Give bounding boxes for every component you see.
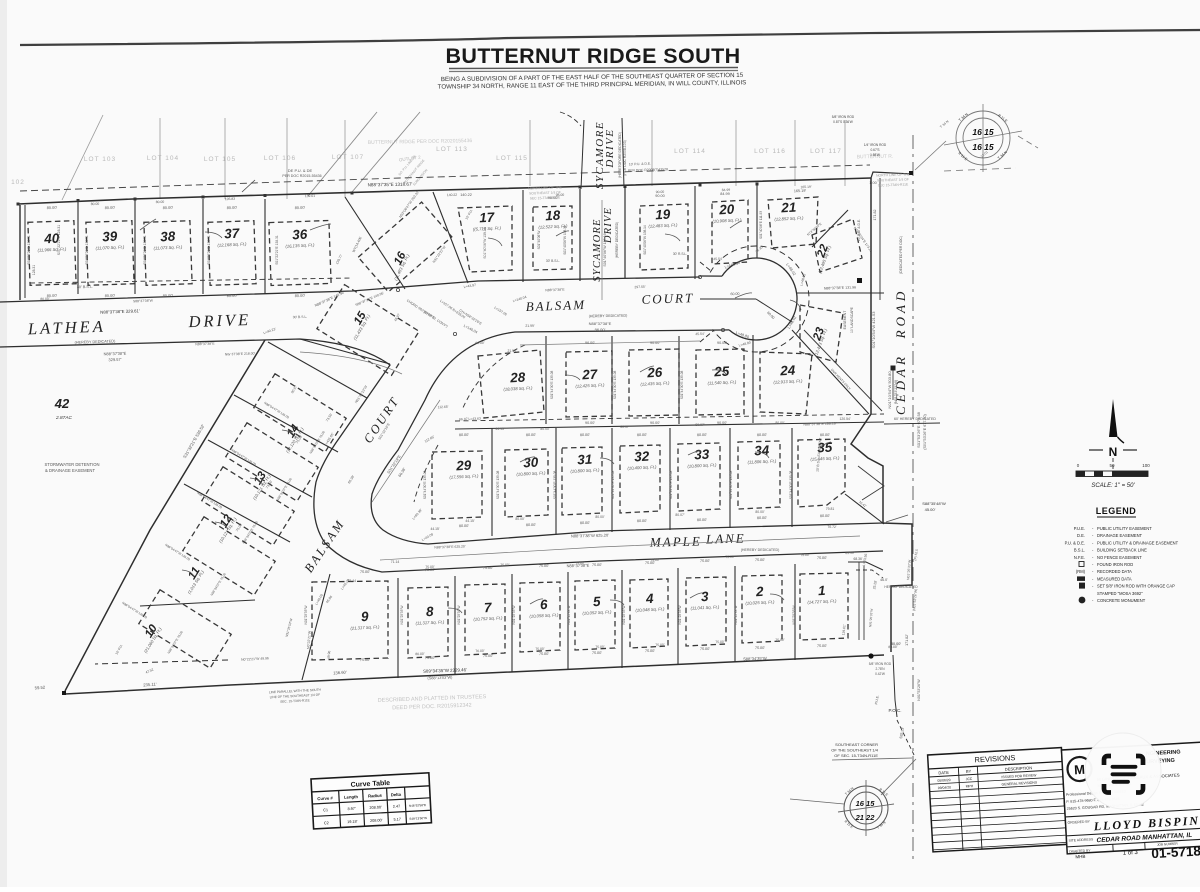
svg-text:7: 7 (484, 600, 493, 615)
svg-text:LOT 117: LOT 117 (810, 148, 842, 155)
svg-text:N01°25'33"W: N01°25'33"W (567, 606, 571, 625)
svg-text:44.15': 44.15' (495, 427, 504, 431)
svg-text:SET 5/8" IRON ROD WITH ORANGE: SET 5/8" IRON ROD WITH ORANGE CAP (1097, 584, 1175, 589)
svg-text:90.00': 90.00' (650, 421, 660, 425)
svg-text:LOT 104: LOT 104 (147, 155, 179, 162)
svg-text:76.00': 76.00' (475, 649, 485, 653)
svg-text:128.31: 128.31 (32, 265, 36, 275)
svg-text:8: 8 (426, 604, 435, 619)
svg-text:S01°44'30"E 135.08: S01°44'30"E 135.08 (729, 471, 733, 500)
svg-text:N88°37'38"E: N88°37'38"E (545, 288, 565, 293)
svg-text:59.52: 59.52 (34, 685, 45, 691)
svg-text:LOT 107: LOT 107 (332, 154, 364, 161)
svg-text:LOT 105: LOT 105 (204, 156, 236, 163)
svg-text:80.00': 80.00' (540, 427, 549, 431)
svg-text:9: 9 (361, 609, 370, 624)
svg-text:Curve #: Curve # (317, 795, 333, 801)
svg-text:45.00': 45.00' (925, 507, 936, 512)
svg-text:LOT 115: LOT 115 (496, 155, 528, 162)
svg-text:BY: BY (966, 769, 972, 774)
svg-text:NO FENCE EASEMENT: NO FENCE EASEMENT (1097, 555, 1142, 560)
svg-text:10' LANDSCAPE: 10' LANDSCAPE (850, 306, 854, 333)
svg-text:30' R.S.L.: 30' R.S.L. (673, 252, 687, 256)
svg-text:75.00': 75.00' (655, 643, 665, 647)
svg-text:80.00': 80.00' (515, 517, 524, 521)
svg-text:N01°10'54"W 503.80: N01°10'54"W 503.80 (887, 371, 892, 409)
svg-text:5/8" IRON ROD: 5/8" IRON ROD (832, 115, 855, 119)
svg-text:SOUTHEAST CORNER: SOUTHEAST CORNER (835, 742, 878, 747)
svg-text:80.00': 80.00' (295, 205, 306, 210)
svg-text:208.00': 208.00' (369, 805, 382, 810)
svg-text:75.00': 75.00' (592, 563, 602, 567)
svg-text:80.00': 80.00' (459, 524, 469, 528)
svg-text:80.00': 80.00' (295, 293, 306, 298)
svg-text:90.00': 90.00' (717, 341, 727, 345)
svg-text:80.00': 80.00' (757, 516, 767, 520)
svg-text:MPH: MPH (966, 784, 974, 788)
svg-text:P.U.E.: P.U.E. (1074, 526, 1085, 531)
svg-text:2.78'N: 2.78'N (875, 667, 885, 671)
svg-text:30' B.S.L.: 30' B.S.L. (546, 259, 560, 263)
svg-text:60' HEREBY DEDICATED: 60' HEREBY DEDICATED (894, 417, 936, 421)
svg-text:LOT 106: LOT 106 (264, 155, 296, 162)
svg-text:N01°25'33"W: N01°25'33"W (512, 606, 516, 625)
svg-text:S01°22'21"E 138.31: S01°22'21"E 138.31 (275, 235, 279, 265)
svg-text:80.00': 80.00' (697, 518, 707, 522)
svg-text:32: 32 (634, 449, 650, 465)
svg-text:30' B.S.L.: 30' B.S.L. (293, 315, 308, 320)
svg-text:S01°40'06"W 138.14: S01°40'06"W 138.14 (643, 225, 647, 255)
svg-text:(RM): (RM) (1076, 569, 1086, 574)
svg-text:S88°34'35"W: S88°34'35"W (743, 656, 767, 662)
svg-text:0.67'S: 0.67'S (871, 148, 880, 152)
svg-text:C2: C2 (324, 821, 329, 825)
svg-text:DRIVE: DRIVE (187, 310, 251, 331)
svg-text:75.00': 75.00' (539, 652, 549, 656)
svg-text:N01°25'33"W: N01°25'33"W (457, 606, 461, 625)
svg-text:44.15': 44.15' (465, 519, 474, 523)
svg-text:B.S.L.: B.S.L. (1074, 548, 1085, 553)
svg-text:OF SEC. 15-T34N-R11E: OF SEC. 15-T34N-R11E (834, 753, 878, 758)
svg-text:75.00': 75.00' (755, 646, 765, 650)
svg-text:16 15: 16 15 (972, 142, 994, 152)
svg-text:60.00: 60.00 (730, 292, 739, 296)
svg-text:N01°25'33"W: N01°25'33"W (678, 606, 682, 625)
svg-text:3: 3 (701, 589, 710, 604)
svg-text:S01°44'30"E 135.08: S01°44'30"E 135.08 (553, 471, 557, 500)
svg-text:N01°25'33"W: N01°25'33"W (622, 606, 626, 625)
svg-text:80.00': 80.00' (227, 205, 238, 210)
svg-text:PUBLIC UTILITY EASEMENT: PUBLIC UTILITY EASEMENT (1097, 526, 1152, 531)
svg-text:2.47: 2.47 (393, 804, 401, 808)
svg-text:S01°40'06"W 139.16: S01°40'06"W 139.16 (483, 227, 487, 258)
svg-text:MHB: MHB (1075, 854, 1085, 860)
svg-text:80.00': 80.00' (757, 433, 767, 437)
svg-text:S01°22'21"E 138.31: S01°22'21"E 138.31 (85, 235, 89, 265)
svg-text:80.00': 80.00' (526, 523, 536, 527)
svg-text:S01°44'30"E 135.08: S01°44'30"E 135.08 (611, 471, 615, 500)
svg-text:80.00': 80.00' (415, 652, 425, 656)
svg-text:80.00': 80.00' (227, 293, 238, 298)
svg-text:MEASURED DATA: MEASURED DATA (1097, 576, 1132, 581)
svg-text:Delta: Delta (391, 792, 402, 798)
svg-text:(PER DOC R2008-103): (PER DOC R2008-103) (623, 140, 627, 175)
svg-text:LEGEND: LEGEND (1096, 506, 1137, 516)
svg-text:21: 21 (780, 200, 797, 216)
svg-text:S01°22'21"E 138.31: S01°22'21"E 138.31 (143, 235, 147, 265)
svg-text:(DEDICATED PER DOC): (DEDICATED PER DOC) (899, 236, 903, 274)
svg-text:FOUND IRON ROD: FOUND IRON ROD (1097, 562, 1133, 567)
svg-text:8.97': 8.97' (347, 807, 356, 811)
svg-text:83.36': 83.36' (845, 551, 855, 555)
svg-text:80.07': 80.07' (695, 423, 704, 427)
svg-text:105.83: 105.83 (225, 197, 236, 201)
svg-text:75.00': 75.00' (595, 645, 605, 649)
svg-text:OF THE SOUTHEAST 1/4: OF THE SOUTHEAST 1/4 (831, 748, 879, 753)
svg-text:S01°44'30"E 135.08: S01°44'30"E 135.08 (789, 471, 793, 500)
svg-text:S01°22'21"E 138.31: S01°22'21"E 138.31 (207, 235, 211, 265)
svg-text:P.U. & D.E.: P.U. & D.E. (1065, 540, 1085, 545)
svg-text:80.00': 80.00' (775, 421, 784, 425)
svg-text:120.54': 120.54' (839, 417, 850, 421)
svg-text:21.99': 21.99' (525, 324, 534, 328)
svg-text:LOT 113: LOT 113 (436, 146, 468, 153)
svg-text:2.87AC: 2.87AC (55, 415, 73, 421)
svg-text:STAMPED "MOSA 3692": STAMPED "MOSA 3692" (1097, 591, 1143, 596)
svg-text:21 22: 21 22 (855, 813, 876, 822)
svg-text:S88°35'48"W: S88°35'48"W (922, 501, 946, 506)
svg-text:S01°44'30"E 135.08: S01°44'30"E 135.08 (613, 371, 617, 400)
svg-text:COURT: COURT (641, 290, 694, 307)
svg-text:80.00': 80.00' (820, 433, 830, 437)
svg-text:17: 17 (479, 210, 495, 226)
svg-text:112.65': 112.65' (438, 405, 449, 409)
svg-text:5/8" IRON ROD: 5/8" IRON ROD (869, 662, 892, 666)
svg-text:16 15: 16 15 (856, 799, 876, 808)
svg-text:S01°44'30"E 135.08: S01°44'30"E 135.08 (550, 371, 554, 400)
svg-text:S01°10'54"W 421.53: S01°10'54"W 421.53 (871, 311, 876, 349)
svg-text:Length: Length (344, 794, 359, 800)
svg-text:80.00': 80.00' (755, 510, 764, 514)
svg-text:165.19': 165.19' (800, 185, 812, 189)
svg-text:75.00': 75.00' (800, 553, 810, 557)
svg-text:S01°44'30"E 135.08: S01°44'30"E 135.08 (423, 471, 427, 500)
svg-text:DRIVE: DRIVE (604, 128, 616, 168)
svg-text:75.00': 75.00' (755, 558, 765, 562)
svg-text:SCALE: 1" = 50': SCALE: 1" = 50' (1091, 483, 1135, 489)
svg-text:1 of 3: 1 of 3 (1123, 850, 1139, 857)
svg-text:75.00': 75.00' (700, 647, 710, 651)
svg-text:1/4" IRON ROD: 1/4" IRON ROD (864, 143, 887, 147)
svg-text:P.O.C.: P.O.C. (889, 708, 902, 713)
svg-text:80.00': 80.00' (526, 433, 536, 437)
svg-text:80.00': 80.00' (637, 519, 647, 523)
svg-text:27: 27 (581, 367, 598, 383)
svg-text:BUTTERNUT RIDGE SOUTH: BUTTERNUT RIDGE SOUTH (445, 44, 740, 68)
svg-text:Radius: Radius (368, 793, 383, 799)
svg-text:80.00': 80.00' (459, 433, 469, 437)
svg-text:N88°37'38"E: N88°37'38"E (589, 321, 612, 326)
svg-text:& DRAINAGE EASEMENT: & DRAINAGE EASEMENT (45, 468, 95, 473)
svg-text:75.00': 75.00' (650, 558, 660, 562)
svg-text:BALSAM: BALSAM (525, 297, 586, 314)
svg-text:LOT 103: LOT 103 (84, 156, 116, 163)
svg-text:S01°40'06"W 139.16: S01°40'06"W 139.16 (603, 233, 607, 266)
svg-text:80.00': 80.00' (580, 433, 590, 437)
svg-text:96.00': 96.00' (595, 327, 606, 332)
svg-text:30' B.S.L.: 30' B.S.L. (77, 285, 93, 290)
svg-text:75.00': 75.00' (575, 561, 585, 565)
svg-text:19: 19 (655, 207, 671, 223)
svg-text:CONCRETE MONUMENT: CONCRETE MONUMENT (1097, 598, 1146, 603)
svg-text:(HEREBY DEDICATED): (HEREBY DEDICATED) (589, 314, 628, 319)
svg-text:LATHEA: LATHEA (27, 317, 107, 339)
svg-text:80.00: 80.00 (156, 200, 165, 204)
svg-text:75.00': 75.00' (817, 556, 827, 560)
svg-text:N88°37'38"W 625.20': N88°37'38"W 625.20' (571, 532, 609, 538)
svg-text:1.58'W: 1.58'W (870, 153, 880, 157)
svg-text:75.00': 75.00' (592, 651, 602, 655)
svg-text:S01°44'30"E 135.08: S01°44'30"E 135.08 (680, 371, 684, 400)
svg-text:100: 100 (1142, 463, 1150, 468)
svg-text:28: 28 (509, 370, 526, 386)
svg-text:44.15': 44.15' (431, 527, 440, 531)
svg-text:140.22: 140.22 (460, 193, 472, 197)
svg-text:24: 24 (779, 363, 796, 379)
svg-text:297.55': 297.55' (634, 285, 646, 289)
svg-text:M: M (1074, 762, 1086, 778)
svg-text:10' P.U. & D.E.: 10' P.U. & D.E. (629, 162, 651, 167)
svg-text:0.42'W: 0.42'W (875, 672, 885, 676)
svg-text:165.19': 165.19' (794, 189, 807, 193)
svg-text:36: 36 (292, 227, 308, 243)
svg-text:80.00': 80.00' (888, 645, 898, 649)
svg-text:75.00': 75.00' (775, 638, 785, 642)
svg-text:80.00': 80.00' (163, 205, 174, 210)
svg-text:S01°22'21"E 138.31: S01°22'21"E 138.31 (27, 235, 31, 265)
svg-text:84.99: 84.99 (722, 188, 731, 192)
svg-text:D.E.: D.E. (1077, 533, 1085, 538)
svg-text:5: 5 (593, 594, 602, 609)
svg-text:80.00': 80.00' (820, 514, 830, 518)
svg-text:90.00': 90.00' (717, 421, 727, 425)
svg-text:84.99: 84.99 (720, 192, 730, 196)
svg-text:75.00': 75.00' (483, 654, 493, 658)
svg-text:46.0': 46.0' (880, 578, 888, 582)
svg-text:LANE: LANE (705, 530, 746, 546)
svg-text:S01°40'06"E 111.93: S01°40'06"E 111.93 (759, 211, 763, 239)
svg-text:PER DOC R2015-55436: PER DOC R2015-55436 (282, 174, 321, 178)
svg-text:37: 37 (224, 226, 240, 242)
svg-text:N88°37'38"E: N88°37'38"E (104, 351, 127, 357)
svg-text:80.00: 80.00 (91, 202, 100, 206)
svg-text:136.60': 136.60' (333, 670, 347, 676)
svg-text:38: 38 (160, 229, 176, 245)
svg-text:DATE: DATE (938, 770, 949, 776)
svg-text:(HERETOFORE DEDICATED): (HERETOFORE DEDICATED) (618, 132, 622, 178)
svg-text:S01°40'06"W 138.31: S01°40'06"W 138.31 (563, 225, 567, 255)
svg-text:80.00': 80.00' (105, 205, 116, 210)
svg-text:0.87'S 0.36'W: 0.87'S 0.36'W (833, 120, 853, 124)
svg-text:EASEMENT: EASEMENT (843, 311, 847, 330)
svg-text:S88°37'38"W: S88°37'38"W (133, 299, 154, 304)
svg-text:39: 39 (102, 229, 118, 245)
svg-text:JCC: JCC (966, 777, 973, 781)
svg-text:33: 33 (694, 447, 710, 463)
svg-text:90.00: 90.00 (656, 190, 665, 194)
svg-text:71.14: 71.14 (391, 560, 400, 564)
svg-text:N88°37'35"E 1318.67': N88°37'35"E 1318.67' (368, 182, 413, 188)
svg-text:RECORDED DATA: RECORDED DATA (1097, 569, 1132, 574)
svg-text:S01°22'21"E 128.31: S01°22'21"E 128.31 (57, 225, 61, 255)
svg-text:102: 102 (11, 179, 25, 186)
svg-text:PUBLIC UTILITY & DRAINAGE EASE: PUBLIC UTILITY & DRAINAGE EASEMENT (1097, 540, 1179, 545)
svg-text:(HEREBY DEDICATED): (HEREBY DEDICATED) (741, 548, 780, 552)
svg-text:26: 26 (646, 365, 663, 381)
svg-text:BUILDING SETBACK LINE: BUILDING SETBACK LINE (1097, 548, 1147, 553)
svg-text:45.54': 45.54' (695, 332, 705, 336)
svg-text:05/06/20: 05/06/20 (937, 778, 951, 783)
svg-text:ROAD: ROAD (893, 288, 908, 340)
svg-text:75.00': 75.00' (725, 555, 735, 559)
svg-text:96.00': 96.00' (475, 341, 485, 345)
svg-text:75.00': 75.00' (645, 649, 655, 653)
svg-text:80.00': 80.00' (163, 293, 174, 298)
svg-text:96.00': 96.00' (585, 341, 595, 345)
svg-text:S01°44'30"E 135.08: S01°44'30"E 135.08 (669, 471, 673, 500)
svg-text:09/04/20: 09/04/20 (938, 785, 952, 790)
svg-text:25: 25 (713, 364, 730, 380)
svg-text:80.00': 80.00' (105, 293, 116, 298)
svg-text:80.00': 80.00' (637, 433, 647, 437)
svg-text:C1: C1 (323, 808, 328, 812)
svg-text:75.00': 75.00' (360, 658, 370, 662)
svg-text:4: 4 (645, 591, 655, 606)
svg-text:80.00': 80.00' (47, 205, 58, 210)
svg-text:79.81: 79.81 (826, 507, 835, 511)
svg-text:N.F.E.: N.F.E. (1074, 555, 1085, 560)
svg-text:N88°37'38"E: N88°37'38"E (195, 342, 215, 347)
svg-text:N01°53'26"W: N01°53'26"W (917, 679, 921, 701)
svg-text:80.07': 80.07' (620, 425, 629, 429)
svg-text:10' P.U. & D.E.: 10' P.U. & D.E. (857, 219, 861, 241)
svg-text:N01°25'33"W: N01°25'33"W (792, 606, 796, 625)
svg-text:171.82: 171.82 (873, 210, 877, 221)
svg-text:75.00': 75.00' (700, 559, 710, 563)
svg-text:90.00: 90.00 (655, 194, 665, 198)
svg-text:29: 29 (455, 458, 472, 474)
svg-text:N01°25'33"W: N01°25'33"W (304, 606, 308, 625)
svg-text:(N01°53'23"W): (N01°53'23"W) (894, 380, 898, 404)
svg-text:DRAINAGE EASEMENT: DRAINAGE EASEMENT (1097, 533, 1143, 538)
svg-text:80.00': 80.00' (40, 297, 50, 301)
svg-text:LOT 114: LOT 114 (674, 148, 706, 155)
svg-text:N: N (1109, 445, 1118, 459)
svg-text:20: 20 (718, 202, 735, 218)
svg-text:DE P.U. & DE: DE P.U. & DE (288, 168, 313, 173)
svg-text:19.18': 19.18' (347, 820, 358, 825)
svg-text:80.07': 80.07' (675, 513, 684, 517)
svg-text:90.00': 90.00' (585, 421, 595, 425)
svg-text:75.00': 75.00' (817, 644, 827, 648)
svg-text:31: 31 (577, 452, 593, 468)
svg-text:70.72': 70.72' (827, 525, 836, 529)
svg-text:50: 50 (1109, 463, 1115, 468)
svg-text:STORMWATER DETENTION: STORMWATER DETENTION (44, 462, 99, 467)
svg-text:171.82': 171.82' (905, 634, 909, 646)
svg-text:45.54': 45.54' (713, 257, 723, 261)
svg-text:2: 2 (755, 584, 765, 599)
svg-text:42: 42 (54, 396, 70, 411)
svg-text:01-5718: 01-5718 (1151, 843, 1200, 861)
svg-text:75.00': 75.00' (425, 565, 435, 569)
svg-text:208.00': 208.00' (370, 818, 383, 823)
svg-text:75.00': 75.00' (535, 647, 545, 651)
svg-text:329.57': 329.57' (108, 357, 121, 362)
svg-text:235.11': 235.11' (143, 682, 157, 688)
svg-text:49.96: 49.96 (327, 650, 332, 659)
svg-text:N01°25'33"W: N01°25'33"W (400, 606, 404, 625)
svg-text:80.00': 80.00' (697, 433, 707, 437)
svg-text:132.01: 132.01 (305, 194, 316, 198)
svg-text:LOT 116: LOT 116 (754, 148, 786, 155)
svg-text:S01°40'06"W: S01°40'06"W (537, 231, 541, 250)
svg-text:MAPLE: MAPLE (649, 533, 702, 549)
svg-text:75.00': 75.00' (500, 563, 510, 567)
svg-text:75.00': 75.00' (483, 566, 493, 570)
svg-text:16 15: 16 15 (972, 127, 994, 137)
svg-text:75.00': 75.00' (425, 656, 435, 660)
svg-text:80.00': 80.00' (595, 515, 604, 519)
svg-text:1: 1 (818, 583, 826, 598)
svg-text:75.00': 75.00' (715, 640, 725, 644)
svg-text:21.99': 21.99' (508, 349, 517, 353)
svg-text:68.36': 68.36' (854, 557, 863, 561)
svg-text:18: 18 (545, 208, 561, 224)
svg-text:140.22: 140.22 (447, 193, 458, 197)
svg-text:N01°25'33"W: N01°25'33"W (734, 606, 738, 625)
svg-text:SYCAMORE: SYCAMORE (592, 218, 603, 281)
svg-text:75.00': 75.00' (539, 564, 549, 568)
svg-text:66.97 L=43.63: 66.97 L=43.63 (459, 417, 481, 422)
svg-text:75.00': 75.00' (360, 570, 370, 574)
svg-text:(HEREBY DEDICATED): (HEREBY DEDICATED) (615, 222, 619, 258)
svg-text:80.00': 80.00' (580, 521, 590, 525)
svg-text:5.17: 5.17 (393, 817, 401, 821)
svg-text:S01°44'30"E 135.08: S01°44'30"E 135.08 (496, 471, 500, 500)
